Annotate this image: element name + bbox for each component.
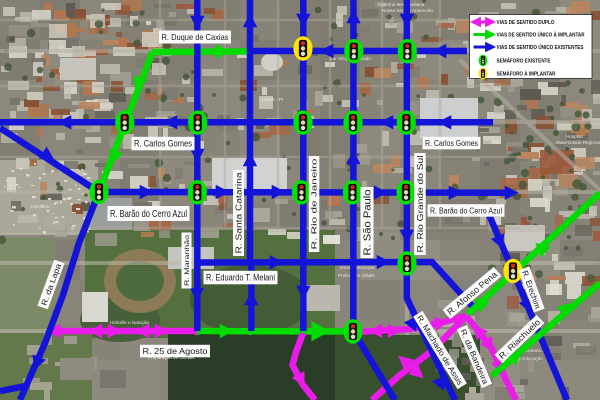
svg-text:R. Carlos Gomes: R. Carlos Gomes [134, 139, 192, 149]
svg-text:R. Barão do Cerro Azul: R. Barão do Cerro Azul [110, 209, 187, 220]
svg-text:Maternidade Regional: Maternidade Regional [556, 140, 600, 145]
svg-text:HNSS - Pr: HNSS - Pr [262, 97, 284, 102]
svg-text:R. São Paulo: R. São Paulo [363, 189, 374, 256]
svg-text:VIAS DE SENTIDO DUPLO: VIAS DE SENTIDO DUPLO [497, 20, 555, 26]
svg-text:R. Eduardo T. Melani: R. Eduardo T. Melani [206, 273, 275, 283]
svg-text:Catedral Metropolitana: Catedral Metropolitana [378, 2, 425, 7]
svg-text:VIAS DE SENTIDO ÚNICO EXISTENT: VIAS DE SENTIDO ÚNICO EXISTENTES [497, 44, 584, 51]
svg-text:R. Rio Grande do Sul: R. Rio Grande do Sul [415, 155, 425, 252]
svg-text:Hospital: Hospital [566, 134, 583, 139]
svg-text:R. Carlos Gomes: R. Carlos Gomes [425, 139, 478, 148]
svg-text:R. Santa Catarina: R. Santa Catarina [234, 172, 243, 254]
svg-text:R. 25 de Agosto: R. 25 de Agosto [143, 347, 209, 356]
svg-text:VIAS DE SENTIDO ÚNICO À IMPLAN: VIAS DE SENTIDO ÚNICO À IMPLANTAR [497, 32, 586, 39]
svg-text:R. Rio de Janeiro: R. Rio de Janeiro [310, 159, 319, 250]
svg-text:R. Barão do Cerro Azul: R. Barão do Cerro Azul [430, 206, 502, 215]
svg-text:Escola Municipal: Escola Municipal [340, 265, 374, 270]
svg-text:Cemitério: Cemitério [30, 204, 50, 209]
svg-text:R. Duque de Caxias: R. Duque de Caxias [162, 32, 229, 42]
svg-text:SEMÁFORO EXISTENTE: SEMÁFORO EXISTENTE [497, 58, 551, 65]
svg-text:Hidrolife e Natação: Hidrolife e Natação [110, 320, 150, 325]
svg-text:Professora Gládis: Professora Gládis [338, 273, 375, 278]
svg-text:de Educação: de Educação [516, 356, 543, 361]
svg-text:SEMÁFORO À IMPLANTAR: SEMÁFORO À IMPLANTAR [497, 71, 557, 78]
svg-text:R. Maranhão: R. Maranhão [184, 235, 191, 286]
